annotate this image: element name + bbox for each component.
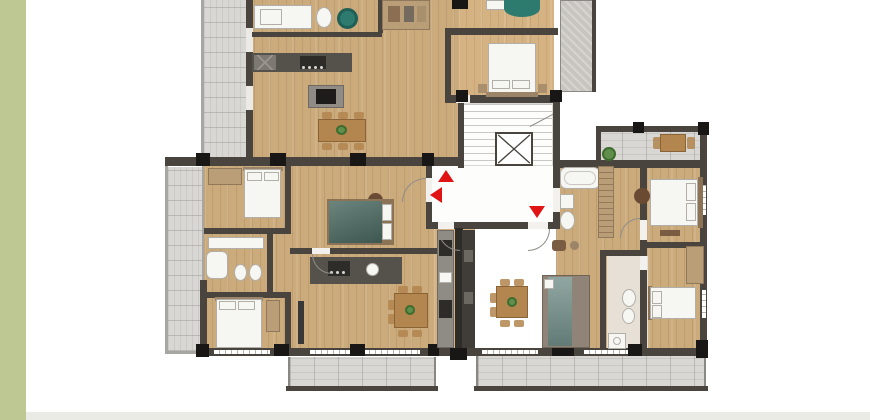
sofa-pillow <box>544 279 554 289</box>
column <box>696 340 708 358</box>
dining-chair <box>322 143 332 150</box>
appliance <box>464 292 473 304</box>
toilet <box>622 289 636 307</box>
column <box>270 153 286 166</box>
bidet <box>622 308 635 324</box>
balcony-plant <box>602 147 616 161</box>
dining-chair <box>500 279 510 286</box>
wardrobe-contents <box>404 6 414 22</box>
window <box>310 350 420 354</box>
balcony-railing <box>201 0 204 158</box>
table-plant <box>405 305 415 315</box>
dining-chair <box>514 279 524 286</box>
stair-wall-left <box>458 92 464 168</box>
nightstand <box>538 84 547 93</box>
wardrobe-contents <box>417 6 426 22</box>
toilet <box>560 211 575 230</box>
left-balcony <box>168 167 202 351</box>
wall <box>445 28 451 102</box>
dining-chair <box>354 143 364 150</box>
sidebar-accent-bar <box>0 0 26 420</box>
wall <box>285 166 291 232</box>
floor-plan-image[interactable] <box>160 0 712 398</box>
pillow <box>238 301 255 310</box>
kitchen-sink <box>366 263 379 276</box>
dining-chair <box>398 330 408 337</box>
wall <box>285 298 291 350</box>
balcony-railing <box>165 166 168 354</box>
column <box>422 153 434 166</box>
column <box>550 90 562 102</box>
wall <box>445 28 558 35</box>
dining-chair <box>500 320 510 327</box>
wardrobe <box>686 246 704 284</box>
column <box>633 122 644 133</box>
column <box>450 348 467 360</box>
appliance <box>464 250 473 262</box>
balcony-door <box>246 86 253 110</box>
pillow <box>264 172 279 181</box>
dining-chair <box>514 320 524 327</box>
toilet <box>316 7 332 28</box>
pillow <box>686 183 696 201</box>
kitchen-hatch-box <box>254 55 276 70</box>
column <box>350 344 365 356</box>
dining-chair <box>354 112 364 119</box>
pillow <box>652 291 662 304</box>
dining-chair <box>322 112 332 119</box>
elevator-cross-icon <box>497 134 531 164</box>
bidet <box>249 264 262 281</box>
sink <box>260 9 282 25</box>
table-plant <box>507 297 517 307</box>
pillow <box>686 203 696 221</box>
fridge <box>439 300 452 318</box>
sink <box>560 194 574 209</box>
balcony-divider-wall <box>246 0 253 158</box>
wall <box>267 234 273 296</box>
kitchen-sink <box>439 272 452 283</box>
pillow <box>652 305 662 318</box>
window <box>702 290 706 318</box>
pillow <box>219 301 236 310</box>
column <box>452 0 468 9</box>
pillow <box>492 80 510 89</box>
table-plant <box>336 125 347 135</box>
wall <box>204 228 291 234</box>
apartment-door <box>528 222 548 229</box>
column <box>628 344 642 356</box>
shaft-wall <box>592 0 596 92</box>
balcony-parapet <box>474 386 708 391</box>
pillow <box>512 80 530 89</box>
wall <box>600 250 606 350</box>
balcony-wall <box>596 126 706 132</box>
side-table <box>570 241 579 250</box>
dining-chair <box>338 143 348 150</box>
pillow <box>382 223 392 240</box>
pillow <box>247 172 262 181</box>
stove <box>300 56 326 69</box>
dining-chair <box>412 330 422 337</box>
toilet <box>234 264 247 281</box>
closet-shelves <box>598 166 614 238</box>
bed-teal-cover <box>329 201 382 243</box>
column <box>698 122 709 135</box>
bed-bench <box>660 230 680 236</box>
elevator-shaft <box>495 132 533 166</box>
round-rug <box>337 8 358 29</box>
apartment-door <box>438 222 454 229</box>
bathroom-counter <box>208 237 264 249</box>
dining-chair <box>398 286 408 293</box>
balcony-chair <box>687 137 695 149</box>
cooktop <box>316 89 336 104</box>
entrance-arrow-left <box>430 187 442 203</box>
footer-strip <box>26 412 870 420</box>
wall <box>600 250 647 256</box>
entrance-arrow-down <box>529 206 545 218</box>
kitchen-counter-dark <box>462 230 475 348</box>
column <box>456 90 468 102</box>
column <box>350 153 366 166</box>
column <box>274 344 289 356</box>
bathtub <box>206 251 228 279</box>
armchair <box>552 240 566 251</box>
entrance-arrow-up <box>438 170 454 182</box>
pillow <box>382 204 392 221</box>
column <box>196 344 209 357</box>
bottom-left-balcony <box>288 357 436 387</box>
top-left-balcony <box>204 0 246 158</box>
concrete-shaft <box>560 0 594 92</box>
window <box>584 350 628 354</box>
window <box>214 350 270 354</box>
dining-chair <box>412 286 422 293</box>
balcony-table <box>660 134 686 152</box>
wall <box>252 32 382 37</box>
round-rug-half <box>504 0 540 17</box>
exterior-wall-left-lower <box>200 280 207 352</box>
wardrobe-contents <box>388 6 400 22</box>
exterior-wall-right <box>700 126 707 356</box>
dining-chair <box>338 112 348 119</box>
shower-drain <box>613 337 621 345</box>
column <box>196 153 210 166</box>
round-rug <box>634 188 650 204</box>
apartment-door <box>553 188 560 212</box>
window <box>482 350 538 354</box>
headboard <box>698 177 703 228</box>
bottom-right-balcony <box>476 356 706 387</box>
headboard <box>486 92 538 97</box>
balcony-parapet <box>286 386 438 391</box>
room-door <box>640 220 647 240</box>
bathtub-inner <box>564 171 596 185</box>
door-swing <box>528 229 550 251</box>
tv-sideboard <box>298 301 304 344</box>
wardrobe <box>266 300 280 332</box>
balcony-wall <box>596 126 601 164</box>
wardrobe <box>208 168 242 185</box>
